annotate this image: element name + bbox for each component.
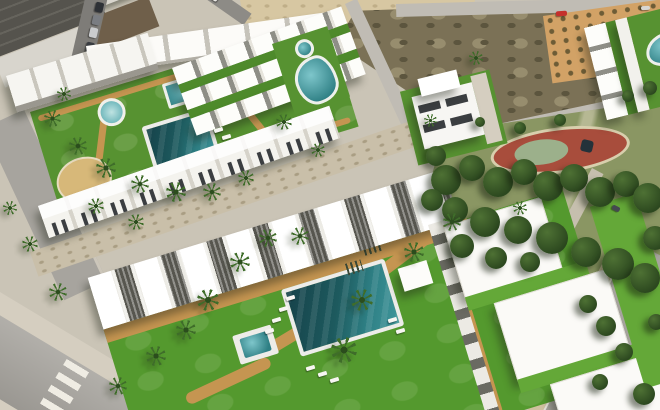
park-tree — [648, 314, 660, 330]
balcony-band — [450, 113, 473, 126]
parked-car — [94, 2, 104, 14]
park-tree — [633, 183, 660, 213]
balcony-band — [418, 101, 441, 114]
wavy-pool — [289, 51, 344, 110]
balcony-band — [445, 94, 468, 107]
palm-tree — [176, 320, 196, 340]
car — [641, 6, 650, 10]
parked-car — [88, 27, 98, 39]
palm-tree — [197, 289, 219, 311]
park-tree — [579, 295, 597, 313]
park-tree — [475, 117, 485, 127]
park-tree — [585, 177, 615, 207]
park-tree — [459, 155, 485, 181]
palm-tree — [44, 110, 61, 127]
palm-tree — [311, 143, 325, 157]
palm-tree — [88, 198, 104, 214]
park-tree — [571, 237, 601, 267]
palm-tree — [331, 337, 357, 363]
park-tree — [592, 374, 608, 390]
park-tree — [514, 122, 526, 134]
palm-tree — [22, 236, 38, 252]
park-tree — [615, 343, 633, 361]
palm-tree — [146, 346, 166, 366]
palm-tree — [230, 252, 250, 272]
aerial-render — [0, 0, 660, 410]
park-tree — [504, 216, 532, 244]
park-tree — [643, 226, 660, 250]
palm-tree — [166, 182, 186, 202]
palm-tree — [238, 170, 254, 186]
park-tree — [633, 383, 655, 405]
park-tree — [560, 164, 588, 192]
palm-tree — [291, 227, 309, 245]
play-structure — [580, 139, 594, 153]
palm-tree — [3, 201, 17, 215]
lower-spa-pool — [239, 331, 272, 358]
palm-tree — [49, 283, 67, 301]
palm-tree — [276, 114, 292, 130]
parked-car — [91, 14, 101, 26]
palm-tree — [351, 289, 373, 311]
park-tree — [485, 247, 507, 269]
park-tree — [596, 316, 616, 336]
palm-tree — [96, 158, 116, 178]
car — [556, 11, 567, 17]
park-tree — [450, 234, 474, 258]
palm-tree — [57, 87, 71, 101]
park-tree — [536, 222, 568, 254]
park-tree — [533, 171, 563, 201]
palm-tree — [259, 229, 277, 247]
palm-tree — [513, 201, 527, 215]
palm-tree — [203, 183, 221, 201]
palm-tree — [443, 213, 461, 231]
park-tree — [520, 252, 540, 272]
park-tree — [421, 189, 443, 211]
palm-tree — [109, 377, 127, 395]
park-tree — [426, 146, 446, 166]
park-tree — [554, 114, 566, 126]
park-tree — [470, 207, 500, 237]
park-tree — [483, 167, 513, 197]
palm-tree — [404, 242, 424, 262]
palm-tree — [469, 51, 483, 65]
palm-tree — [69, 137, 87, 155]
palm-tree — [131, 175, 149, 193]
park-tree — [630, 263, 660, 293]
palm-tree — [128, 214, 144, 230]
palm-tree — [424, 114, 437, 127]
park-tree — [622, 90, 634, 102]
park-tree — [643, 81, 657, 95]
